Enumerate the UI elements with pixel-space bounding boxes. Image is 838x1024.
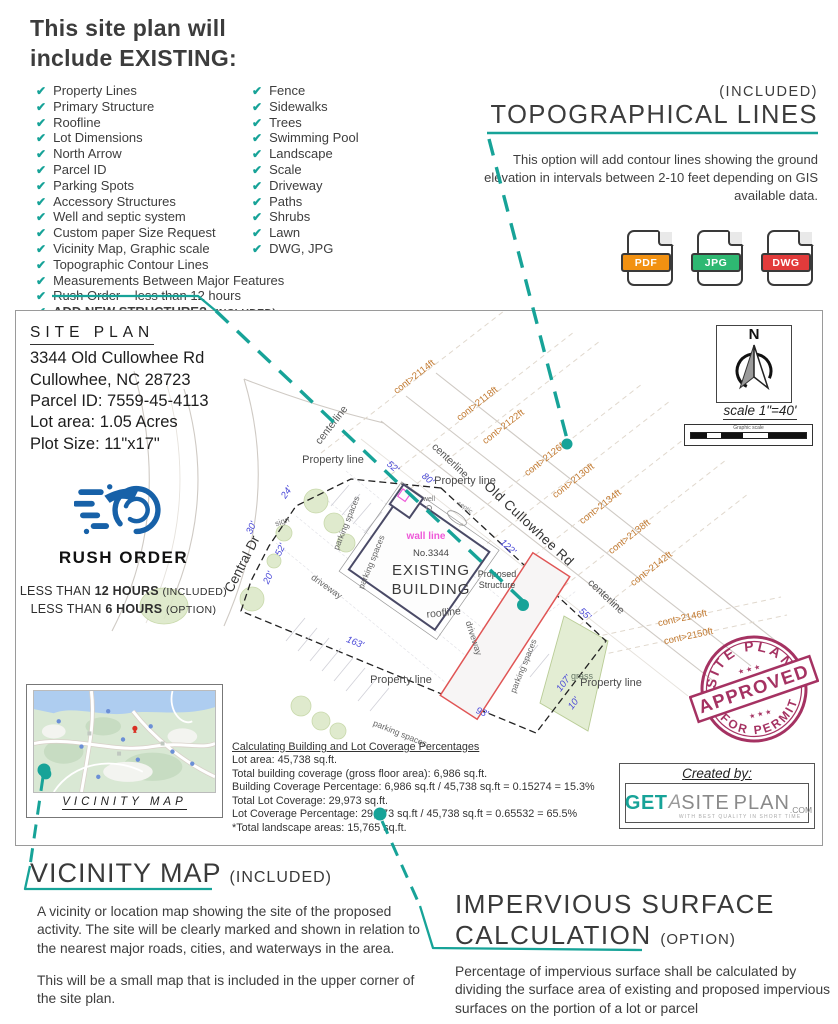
rush-order-title: RUSH ORDER — [6, 548, 241, 568]
checklist-item-label: Custom paper Size Request — [53, 226, 216, 239]
file-format-badges: PDF JPG DWG — [627, 230, 813, 286]
rush-12h-pre: LESS THAN — [20, 584, 91, 598]
scale-segment — [768, 433, 806, 438]
checklist-item-label: Landscape — [269, 147, 333, 160]
pdf-file-icon: PDF — [627, 230, 673, 286]
roofline-label: roofline — [426, 605, 462, 621]
vicinity-paragraph-1: A vicinity or location map showing the s… — [37, 903, 439, 958]
site-plan-info: SITE PLAN 3344 Old Cullowhee Rd Cullowhe… — [30, 322, 209, 455]
calc-line: Total building coverage (gross floor are… — [232, 768, 622, 781]
check-icon: ✔ — [36, 101, 46, 114]
graphic-scale-caption: Graphic scale — [685, 425, 812, 431]
logo-tagline: WITH BEST QUALITY IN SHORT TIME — [678, 814, 802, 820]
scale-label: scale 1"=40' — [710, 403, 810, 418]
check-icon: ✔ — [36, 259, 46, 272]
dimension-label: 52' — [384, 459, 401, 476]
stamp-stars-bottom: ★ ★ ★ — [748, 708, 772, 721]
rush-option-12h: LESS THAN 12 HOURS (INCLUDED) — [6, 582, 241, 600]
checklist-item: ✔Vicinity Map, Graphic scale — [36, 242, 284, 256]
checklist-item: ✔Scale — [252, 163, 359, 177]
topo-section-title: TOPOGRAPHICAL LINES — [490, 101, 818, 130]
checklist-item-label: Driveway — [269, 179, 322, 192]
check-icon: ✔ — [252, 117, 262, 130]
checklist-item-label: Parcel ID — [53, 163, 106, 176]
address-line2: Cullowhee, NC 28723 — [30, 370, 209, 391]
logo-site: SITE — [681, 792, 729, 815]
vicinity-map-thumbnail: VICINITY MAP — [26, 684, 223, 818]
building-number: No.3344 — [413, 548, 449, 559]
checklist-item: ✔Trees — [252, 116, 359, 130]
well-label: well — [422, 496, 436, 503]
check-icon: ✔ — [252, 211, 262, 224]
checklist-item-label: Well and septic system — [53, 210, 186, 223]
vicinity-map-caption-text: VICINITY MAP — [62, 796, 186, 810]
check-icon: ✔ — [36, 132, 46, 145]
checklist-item-label: Measurements Between Major Features — [53, 274, 284, 287]
calc-title: Calculating Building and Lot Coverage Pe… — [232, 741, 622, 754]
graphic-scale-segments — [690, 432, 807, 439]
pdf-label: PDF — [621, 253, 671, 272]
rush-12h-hours: 12 HOURS — [95, 584, 159, 598]
page-title-line2: include EXISTING: — [30, 44, 237, 74]
brand-logo: GETASITEPLAN.COM WITH BEST QUALITY IN SH… — [625, 783, 809, 823]
checklist-item: ✔Landscape — [252, 147, 359, 161]
checklist-item-label: Primary Structure — [53, 100, 154, 113]
checklist-item-label: Topographic Contour Lines — [53, 258, 208, 271]
vicinity-section-title: VICINITY MAP(INCLUDED) — [30, 858, 332, 889]
checklist-left: ✔Property Lines ✔Primary Structure ✔Roof… — [36, 84, 284, 322]
address-line1: 3344 Old Cullowhee Rd — [30, 348, 209, 369]
checklist-item-label: Parking Spots — [53, 179, 134, 192]
north-arrow-box: N — [716, 325, 792, 403]
site-plan-sheet: Old Cullowhee Rd Central Dr centerline c… — [15, 310, 823, 846]
dwg-label: DWG — [761, 253, 811, 272]
centerline-label: centerline — [585, 577, 627, 617]
checklist-item: ✔Roofline — [36, 116, 284, 130]
checklist-item-label: Swimming Pool — [269, 131, 359, 144]
contour-label: cont>2138ft — [606, 517, 652, 557]
check-icon: ✔ — [252, 132, 262, 145]
check-icon: ✔ — [252, 164, 262, 177]
impervious-title-line1: IMPERVIOUS SURFACE — [455, 889, 775, 920]
property-line-label: Property line — [370, 674, 432, 686]
dimension-label: 122' — [497, 537, 518, 558]
dimension-label: 52' — [273, 541, 289, 558]
check-icon: ✔ — [36, 227, 46, 240]
calc-line: Building Coverage Percentage: 6,986 sq.f… — [232, 781, 622, 794]
proposed-structure-label-line1: Proposed — [478, 569, 517, 579]
checklist-item-label: Lot Dimensions — [53, 131, 143, 144]
vicinity-callout-dot — [40, 768, 51, 779]
checklist-item: ✔Sidewalks — [252, 100, 359, 114]
checklist-item: ✔Rush Order – less than 12 hours — [36, 289, 284, 303]
dimension-label: 30' — [244, 519, 260, 536]
approved-stamp: SITE PLAN FOR PERMIT ★ ★ ★ APPROVED ★ ★ … — [689, 624, 819, 754]
building-name-line2: BUILDING — [392, 581, 471, 598]
impervious-section-title: IMPERVIOUS SURFACE CALCULATION (OPTION) — [455, 889, 775, 951]
dimension-label: 20' — [261, 569, 277, 587]
proposed-structure-label-line2: Structure — [479, 580, 516, 590]
centerline-label: centerline — [313, 403, 351, 446]
rush-option-6h: LESS THAN 6 HOURS (OPTION) — [6, 600, 241, 618]
checklist-item: ✔Parcel ID — [36, 163, 284, 177]
checklist-item-label: DWG, JPG — [269, 242, 333, 255]
checklist-item: ✔Custom paper Size Request — [36, 226, 284, 240]
dimension-label: 24' — [278, 483, 295, 501]
scale-segment — [721, 433, 743, 438]
impervious-option-badge: (OPTION) — [660, 931, 736, 948]
check-icon: ✔ — [252, 196, 262, 209]
folded-corner-icon — [658, 230, 674, 246]
logo-a: A — [669, 792, 682, 814]
checklist-item-label: Accessory Structures — [53, 195, 176, 208]
plot-size: Plot Size: 11"x17" — [30, 434, 209, 455]
rush-order-icon — [74, 481, 174, 539]
impervious-paragraph: Percentage of impervious surface shall b… — [455, 963, 833, 1018]
grass-label: grass — [571, 671, 594, 681]
vicinity-paragraph-2: This will be a small map that is include… — [37, 972, 417, 1009]
checklist-item: ✔Driveway — [252, 179, 359, 193]
north-arrow-icon — [724, 342, 784, 396]
topo-description: This option will add contour lines showi… — [478, 151, 818, 205]
dwg-file-icon: DWG — [767, 230, 813, 286]
parcel-id: Parcel ID: 7559-45-4113 — [30, 391, 209, 412]
scale-text: scale 1"=40' — [723, 403, 796, 420]
rush-order-options: LESS THAN 12 HOURS (INCLUDED) LESS THAN … — [6, 582, 241, 618]
check-icon: ✔ — [36, 290, 46, 303]
impervious-title-line2: CALCULATION (OPTION) — [455, 920, 775, 951]
vicinity-included-badge: (INCLUDED) — [230, 869, 332, 886]
checklist-item-label: Roofline — [53, 116, 101, 129]
checklist-item: ✔Fence — [252, 84, 359, 98]
check-icon: ✔ — [36, 196, 46, 209]
checklist-item: ✔Topographic Contour Lines — [36, 258, 284, 272]
checklist-item: ✔Accessory Structures — [36, 195, 284, 209]
check-icon: ✔ — [36, 117, 46, 130]
check-icon: ✔ — [36, 243, 46, 256]
checklist-item-label: Rush Order – less than 12 hours — [53, 289, 241, 302]
contour-label: cont>2118ft — [455, 384, 501, 423]
property-line-label: Property line — [434, 475, 496, 487]
checklist-item: ✔Property Lines — [36, 84, 284, 98]
checklist-item-label: North Arrow — [53, 147, 122, 160]
check-icon: ✔ — [36, 180, 46, 193]
checklist-item-label: Sidewalks — [269, 100, 328, 113]
check-icon: ✔ — [252, 148, 262, 161]
checklist-item: ✔North Arrow — [36, 147, 284, 161]
calc-line: Lot Coverage Percentage: 29,973 sq.ft / … — [232, 808, 622, 821]
check-icon: ✔ — [252, 243, 262, 256]
contour-label: cont>2142ft — [628, 549, 674, 589]
checklist-item: ✔Lot Dimensions — [36, 131, 284, 145]
vicinity-map-image — [33, 690, 216, 793]
vicinity-title-text: VICINITY MAP — [30, 858, 222, 888]
dimension-label: 55' — [576, 606, 593, 623]
check-icon: ✔ — [36, 148, 46, 161]
checklist-item: ✔Paths — [252, 195, 359, 209]
graphic-scale-bar: Graphic scale — [684, 424, 813, 446]
calc-line: Total Lot Coverage: 29,973 sq.ft. — [232, 795, 622, 808]
existing-building-footprint — [339, 482, 499, 640]
logo-get: GET — [625, 792, 668, 815]
calc-line: Lot area: 45,738 sq.ft. — [232, 754, 622, 767]
checklist-item-label: Paths — [269, 195, 302, 208]
check-icon: ✔ — [36, 164, 46, 177]
checklist-item: ✔Shrubs — [252, 210, 359, 224]
logo-plan: PLAN — [734, 792, 790, 815]
checklist-item: ✔Swimming Pool — [252, 131, 359, 145]
contour-label: cont>2134ft — [577, 487, 623, 527]
checklist-item-label: Shrubs — [269, 210, 310, 223]
rush-order-block: RUSH ORDER LESS THAN 12 HOURS (INCLUDED)… — [6, 481, 241, 618]
checklist-item: ✔Primary Structure — [36, 100, 284, 114]
checklist-item-label: Trees — [269, 116, 302, 129]
checklist-item-label: Vicinity Map, Graphic scale — [53, 242, 210, 255]
created-by-box: Created by: GETASITEPLAN.COM WITH BEST Q… — [619, 763, 815, 829]
check-icon: ✔ — [252, 85, 262, 98]
lot-area: Lot area: 1.05 Acres — [30, 412, 209, 433]
property-line-label: Property line — [302, 454, 364, 466]
scale-segment — [691, 433, 707, 438]
check-icon: ✔ — [252, 227, 262, 240]
rush-12h-note: (INCLUDED) — [162, 586, 227, 598]
checklist-item: ✔Well and septic system — [36, 210, 284, 224]
checklist-right: ✔Fence ✔Sidewalks ✔Trees ✔Swimming Pool … — [252, 84, 359, 258]
check-icon: ✔ — [36, 275, 46, 288]
building-name-line1: EXISTING — [392, 562, 470, 579]
checklist-item-label: Fence — [269, 84, 305, 97]
jpg-file-icon: JPG — [697, 230, 743, 286]
check-icon: ✔ — [252, 180, 262, 193]
contour-label: cont>2114ft — [392, 357, 438, 396]
dimension-label: 163' — [345, 634, 367, 651]
scale-segment — [707, 433, 721, 438]
coverage-calculations: Calculating Building and Lot Coverage Pe… — [232, 741, 622, 835]
folded-corner-icon — [728, 230, 744, 246]
checklist-item: ✔DWG, JPG — [252, 242, 359, 256]
folded-corner-icon — [798, 230, 814, 246]
checklist-item: ✔Parking Spots — [36, 179, 284, 193]
topo-included-badge: (INCLUDED) — [719, 84, 818, 100]
impervious-title-line2-text: CALCULATION — [455, 920, 652, 950]
page-title-line1: This site plan will — [30, 14, 237, 44]
rush-6h-note: (OPTION) — [166, 604, 216, 616]
jpg-label: JPG — [691, 253, 741, 272]
scale-segment — [743, 433, 769, 438]
vicinity-map-caption: VICINITY MAP — [33, 796, 216, 808]
wall-line-label: wall line — [406, 531, 446, 542]
driveway-label: driveway — [309, 572, 344, 601]
site-plan-info-title: SITE PLAN — [30, 323, 154, 345]
checklist-item-label: Property Lines — [53, 84, 137, 97]
checklist-item-label: Scale — [269, 163, 302, 176]
rush-6h-pre: LESS THAN — [31, 602, 102, 616]
checklist-item-label: Lawn — [269, 226, 300, 239]
page: This site plan will include EXISTING: ✔P… — [0, 0, 838, 1024]
check-icon: ✔ — [36, 85, 46, 98]
rush-6h-hours: 6 HOURS — [105, 602, 162, 616]
checklist-item: ✔Lawn — [252, 226, 359, 240]
created-by-label: Created by: — [625, 766, 809, 781]
checklist-item: ✔Measurements Between Major Features — [36, 274, 284, 288]
calc-line: *Total landscape areas: 15,765 sq.ft. — [232, 822, 622, 835]
check-icon: ✔ — [36, 211, 46, 224]
page-title: This site plan will include EXISTING: — [30, 14, 237, 74]
check-icon: ✔ — [252, 101, 262, 114]
north-letter: N — [717, 328, 791, 342]
